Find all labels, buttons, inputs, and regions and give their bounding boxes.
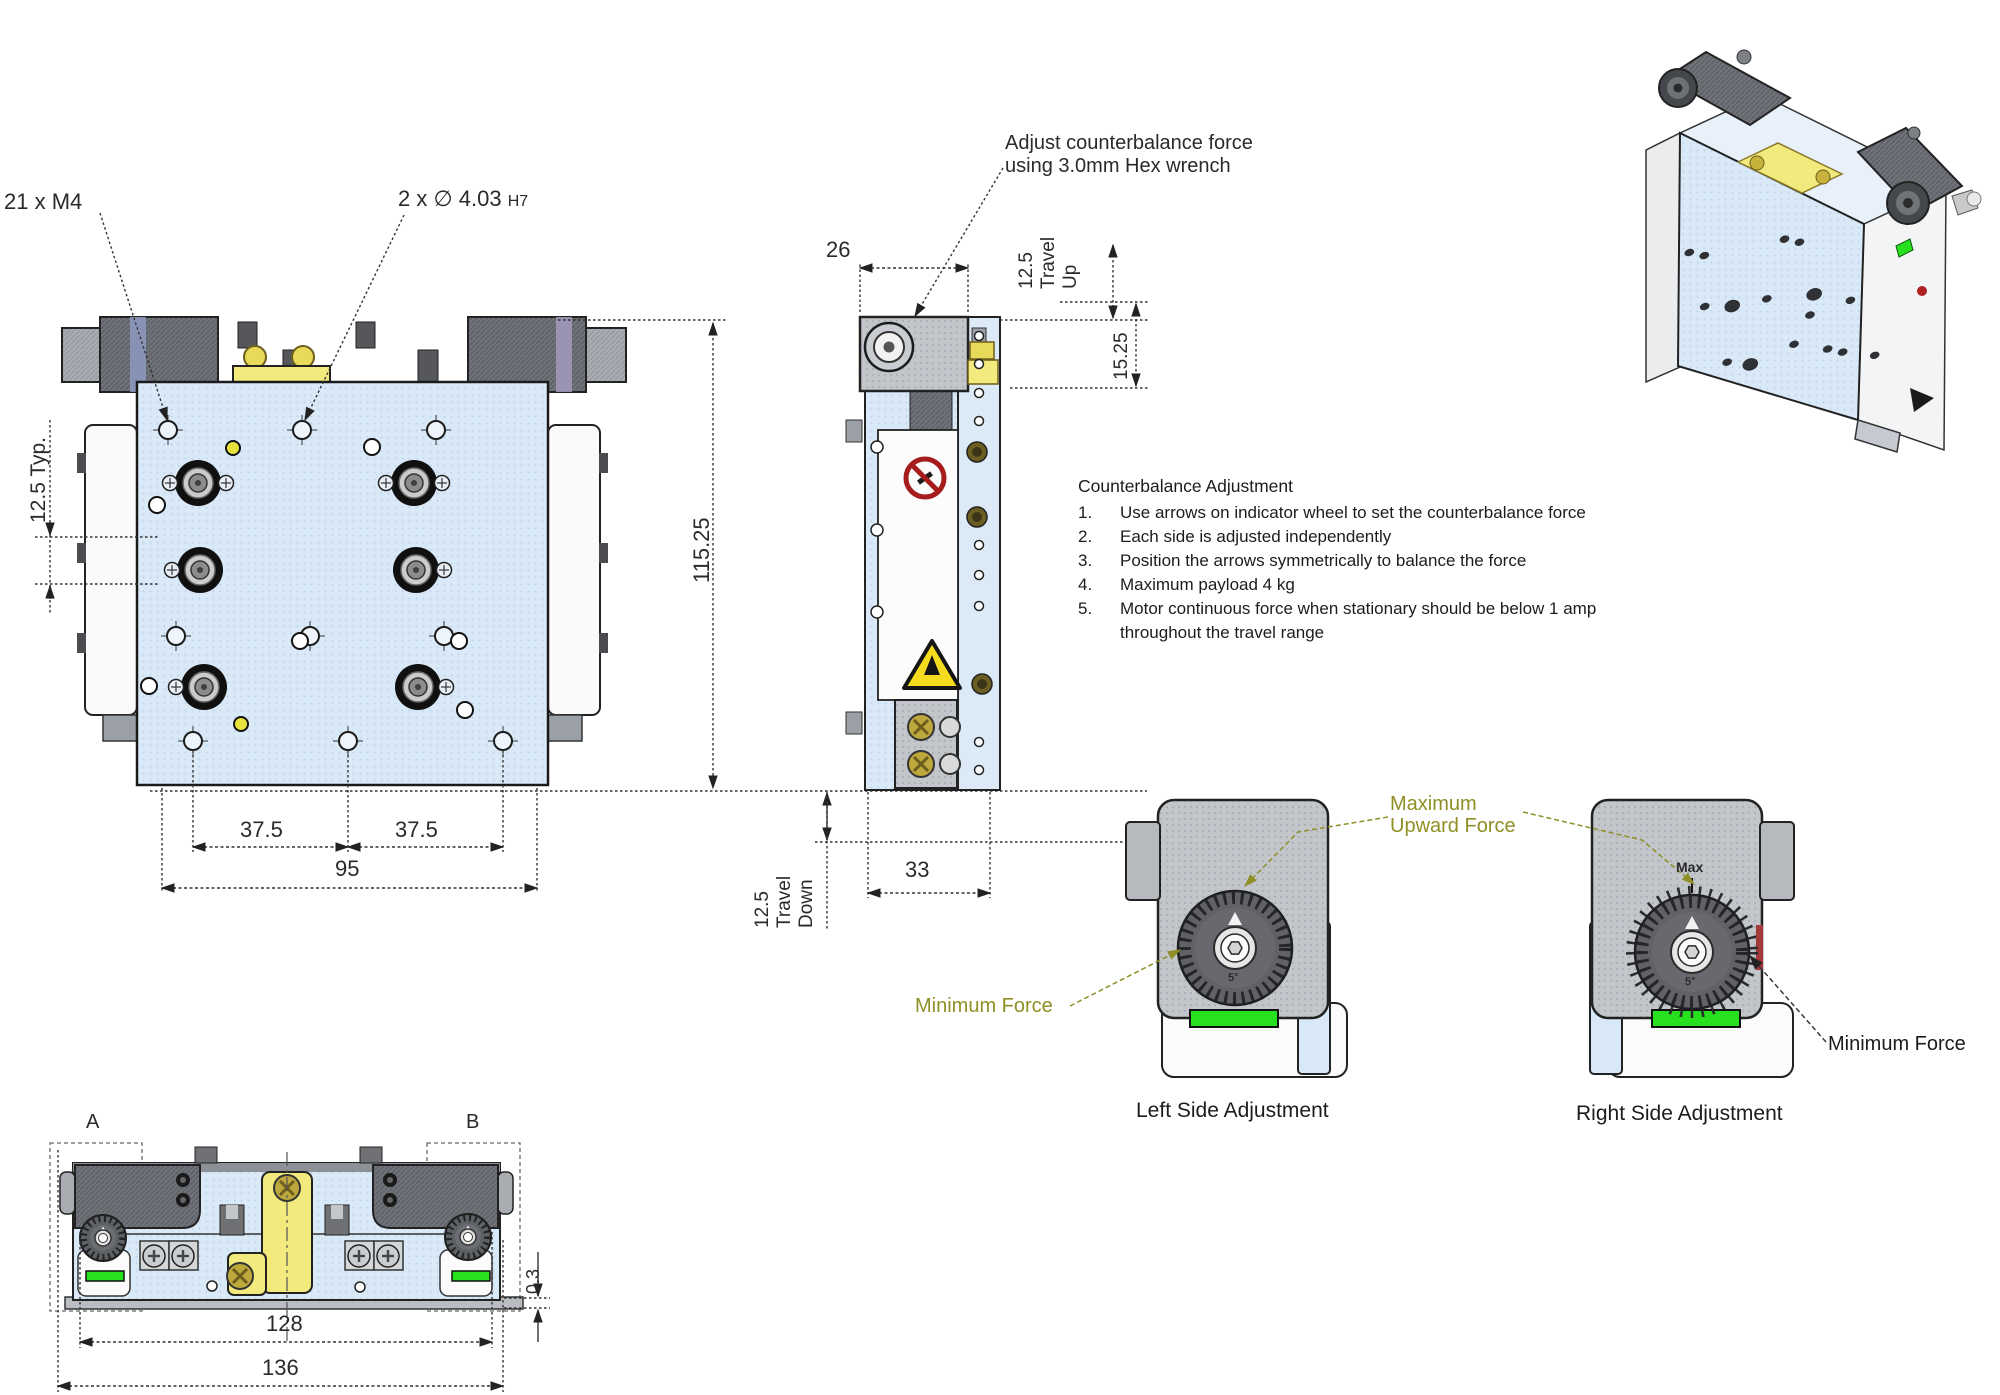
note-text: Motor continuous force when stationary s… [1120, 597, 1598, 645]
dim-travel-down: 12.5 Travel Down [752, 866, 818, 928]
left-indicator-wheel [1178, 891, 1292, 1005]
callout-counterbalance: Adjust counterbalance force using 3.0mm … [1005, 132, 1305, 178]
bottom-right-dial [445, 1214, 491, 1260]
dim-travel-down-label: Travel Down [774, 866, 818, 928]
left-dial-mark: 5° [1228, 972, 1239, 984]
callout-dowel-pin-tolerance: H7 [508, 193, 528, 210]
right-dial-mark: 5° [1685, 976, 1696, 988]
note-number: 4. [1078, 573, 1120, 597]
isometric-view [1646, 50, 1981, 452]
note-number: 3. [1078, 549, 1120, 573]
caption-left-side-adjustment: Left Side Adjustment [1136, 1100, 1329, 1122]
dim-travel-up-value: 12.5 [1016, 227, 1038, 289]
dim-side-top-width: 26 [826, 238, 850, 261]
note-text: Use arrows on indicator wheel to set the… [1120, 501, 1598, 525]
caption-right-side-adjustment: Right Side Adjustment [1576, 1103, 1783, 1125]
callout-dowel-pin-value: 2 x ∅ 4.03 [398, 186, 502, 211]
note-number: 2. [1078, 525, 1120, 549]
dim-bottom-outer: 136 [262, 1356, 299, 1379]
left-adjustment-view [1070, 800, 1388, 1077]
drawing-linework [0, 0, 2000, 1395]
callout-dowel-pin: 2 x ∅ 4.03 H7 [398, 187, 528, 211]
label-detail-a: A [86, 1112, 99, 1133]
label-maximum-upward-force: Maximum Upward Force [1390, 793, 1550, 837]
callout-counterbalance-line2: using 3.0mm Hex wrench [1005, 155, 1231, 177]
dim-bottom-step: 0.3 [524, 1269, 543, 1294]
label-max-line2: Upward Force [1390, 815, 1516, 837]
dim-travel-up: 12.5 Travel Up [1016, 227, 1082, 289]
engineering-drawing-sheet: 21 x M4 2 x ∅ 4.03 H7 12.5 Typ. 115.25 3… [0, 0, 2000, 1395]
note-number: 1. [1078, 501, 1120, 525]
notes-title: Counterbalance Adjustment [1078, 474, 1598, 498]
dim-hole-span-right: 37.5 [395, 818, 438, 841]
label-minimum-force-right: Minimum Force [1828, 1034, 1966, 1055]
right-green-indicator [1652, 1010, 1740, 1027]
dim-travel-up-label: Travel Up [1038, 227, 1082, 289]
note-item-3: 3. Position the arrows symmetrically to … [1078, 549, 1598, 573]
label-max-line1: Maximum [1390, 793, 1477, 815]
label-detail-b: B [466, 1112, 479, 1133]
dim-bottom-inner: 128 [266, 1312, 303, 1335]
front-connector-block [233, 346, 330, 383]
right-indicator-wheel [1635, 895, 1749, 1009]
dim-hole-span-left: 37.5 [240, 818, 283, 841]
right-adjustment-view [1523, 800, 1826, 1077]
note-item-4: 4. Maximum payload 4 kg [1078, 573, 1598, 597]
note-item-2: 2. Each side is adjusted independently [1078, 525, 1598, 549]
note-item-5: 5. Motor continuous force when stationar… [1078, 597, 1598, 645]
label-minimum-force-left: Minimum Force [915, 996, 1053, 1017]
note-text: Position the arrows symmetrically to bal… [1120, 549, 1598, 573]
callout-counterbalance-line1: Adjust counterbalance force [1005, 132, 1253, 154]
dim-plate-width: 95 [335, 857, 359, 880]
bottom-left-dial [80, 1215, 126, 1261]
dim-side-offset: 15.25 [1112, 332, 1132, 380]
note-item-1: 1. Use arrows on indicator wheel to set … [1078, 501, 1598, 525]
note-number: 5. [1078, 597, 1120, 645]
label-max-tick: Max [1676, 860, 1703, 875]
note-text: Maximum payload 4 kg [1120, 573, 1598, 597]
counterbalance-notes: Counterbalance Adjustment 1. Use arrows … [1078, 474, 1598, 645]
dim-travel-down-value: 12.5 [752, 866, 774, 928]
callout-m4: 21 x M4 [4, 190, 82, 213]
dim-overall-height: 115.25 [690, 517, 713, 583]
dim-side-depth: 33 [905, 858, 929, 881]
left-green-indicator [1190, 1010, 1278, 1027]
bottom-view [50, 1143, 550, 1392]
note-text: Each side is adjusted independently [1120, 525, 1598, 549]
dim-hole-pitch: 12.5 Typ. [28, 437, 50, 523]
